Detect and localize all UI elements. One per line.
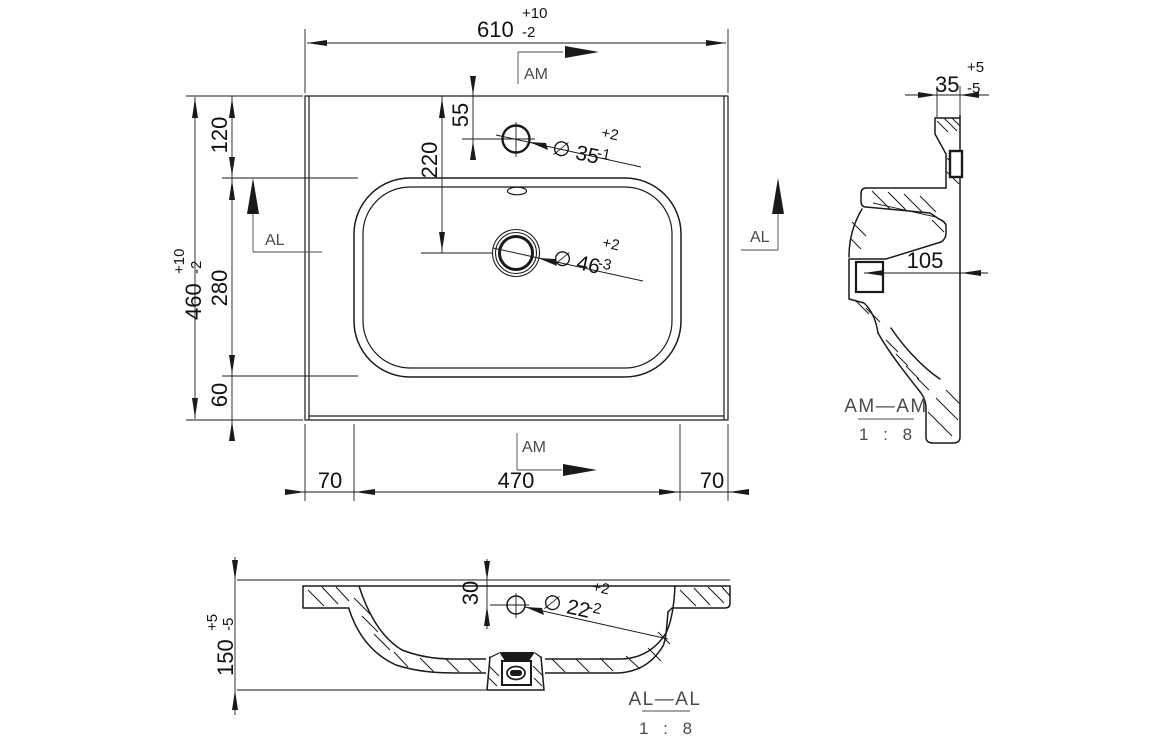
dim-70-left: 70 xyxy=(318,468,342,493)
dia-35-tol-plus: +2 xyxy=(600,124,620,144)
dim-105: 105 xyxy=(907,248,944,273)
fixing-hole xyxy=(950,151,962,177)
dim-120: 120 xyxy=(207,117,232,154)
section-marker-am-bottom: AM xyxy=(517,433,597,476)
dim-35-tol-plus: +5 xyxy=(967,59,984,76)
marker-am-label: AM xyxy=(524,66,548,83)
dim-220: 220 xyxy=(417,142,442,179)
section-title-alal: AL—AL xyxy=(629,689,702,710)
dim-edge-thickness: 35 +5 -5 xyxy=(905,59,989,117)
marker-am-label: AM xyxy=(522,439,546,456)
dim-460-tol-plus: +10 xyxy=(171,249,188,274)
dim-overall-depth: 460 +10 -2 xyxy=(171,96,303,420)
dim-610-tol-minus: -2 xyxy=(522,24,535,41)
drain-boss xyxy=(486,652,545,690)
dia-46-tol-plus: +2 xyxy=(601,234,621,254)
front-section-title: AL—AL 1 : 8 xyxy=(629,689,702,738)
dim-70-right: 70 xyxy=(700,468,724,493)
dim-610-value: 610 xyxy=(477,17,514,42)
countertop-outline xyxy=(305,96,728,420)
washbasin-drawing: 610 +10 -2 460 +10 -2 xyxy=(0,0,1156,742)
section-title-amam: AM—AM xyxy=(844,396,928,417)
marker-al-label: AL xyxy=(265,232,285,249)
dia-35-value: ∅ 35 xyxy=(550,136,601,168)
plan-view: 610 +10 -2 460 +10 -2 xyxy=(171,5,784,501)
dim-tap-drain-offsets: 55 220 xyxy=(417,76,476,253)
marker-al-label: AL xyxy=(750,229,770,246)
dia-46-value: ∅ 46 xyxy=(551,246,602,278)
dim-150-value: 150 xyxy=(213,639,238,676)
basin-outer-edge xyxy=(354,178,681,377)
dim-overall-width: 610 +10 -2 xyxy=(305,5,728,93)
drain-channel xyxy=(856,262,883,292)
front-profile xyxy=(303,586,730,690)
dia-22-tol-minus: -2 xyxy=(586,599,603,618)
label-drain-diameter: ∅ 46 +2 -3 xyxy=(551,225,621,282)
dim-60: 60 xyxy=(207,383,232,407)
dia-35-tol-minus: -1 xyxy=(595,145,612,164)
dim-depth-chain: 120 280 60 xyxy=(207,96,358,441)
section-scale-alal: 1 : 8 xyxy=(639,719,697,738)
dim-35-value: 35 xyxy=(935,72,959,97)
dim-overflow-offset: 30 xyxy=(458,559,490,629)
dia-22-value: ∅ 22 xyxy=(541,590,592,622)
dim-460-value: 460 xyxy=(181,283,206,320)
dim-610-tol-plus: +10 xyxy=(522,5,547,22)
label-overflow-diameter: ∅ 22 +2 -2 xyxy=(541,569,611,626)
section-scale-amam: 1 : 8 xyxy=(859,425,917,444)
dim-35-tol-minus: -5 xyxy=(967,80,980,97)
dim-150-tol-plus: +5 xyxy=(204,614,221,631)
section-marker-al-right: AL xyxy=(741,178,784,250)
section-marker-am-top: AM xyxy=(518,46,599,84)
overflow-slot xyxy=(508,187,527,195)
dim-280: 280 xyxy=(207,270,232,307)
section-marker-al-left: AL xyxy=(247,178,322,252)
dia-22-tol-plus: +2 xyxy=(591,578,611,598)
front-section-view: ∅ 22 +2 -2 30 150 +5 -5 AL—AL 1 : 8 xyxy=(204,557,730,738)
dia-46-tol-minus: -3 xyxy=(596,255,613,274)
dim-55: 55 xyxy=(448,103,473,127)
dim-30: 30 xyxy=(458,581,483,605)
dim-150-tol-minus: -5 xyxy=(220,618,237,631)
label-tap-diameter: ∅ 35 +2 -1 xyxy=(550,115,620,172)
dim-total-height: 150 +5 -5 xyxy=(204,557,238,715)
side-profile xyxy=(849,115,962,443)
technical-drawing-sheet: 610 +10 -2 460 +10 -2 xyxy=(0,0,1156,742)
dim-470: 470 xyxy=(498,468,535,493)
dim-460-tol-minus: -2 xyxy=(188,261,205,274)
side-section-title: AM—AM 1 : 8 xyxy=(844,396,928,444)
side-section-view: 35 +5 -5 xyxy=(844,59,989,444)
